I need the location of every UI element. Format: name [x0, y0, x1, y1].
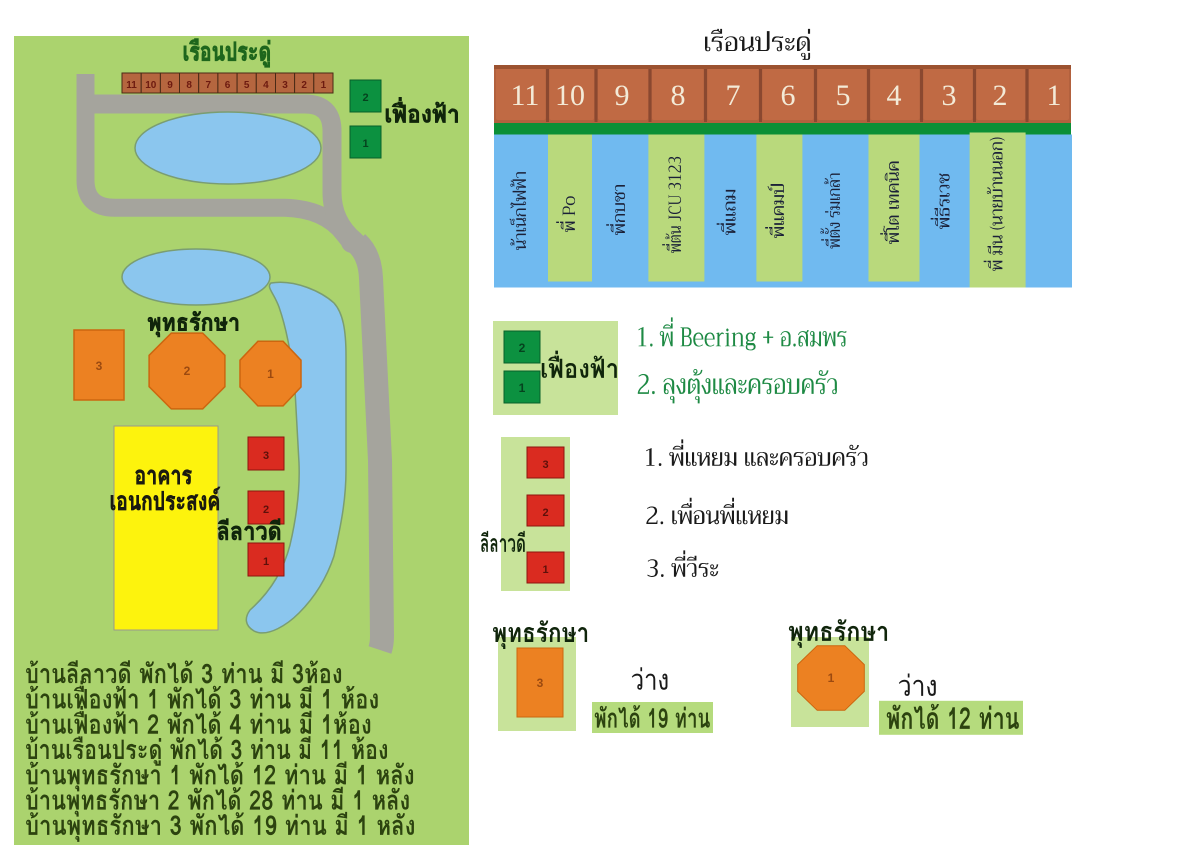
svg-text:2: 2 — [301, 80, 307, 91]
svg-text:10: 10 — [145, 80, 157, 91]
svg-text:2: 2 — [993, 79, 1008, 112]
svg-text:1: 1 — [519, 381, 526, 395]
svg-text:3: 3 — [263, 450, 269, 462]
svg-text:4: 4 — [887, 79, 902, 112]
svg-text:5: 5 — [836, 79, 851, 112]
svg-text:1: 1 — [362, 138, 368, 150]
svg-text:11: 11 — [126, 80, 137, 91]
svg-text:5: 5 — [244, 80, 250, 91]
svg-text:2: 2 — [519, 341, 526, 355]
svg-text:8: 8 — [671, 79, 686, 112]
svg-text:7: 7 — [726, 79, 741, 112]
svg-text:1: 1 — [1047, 79, 1062, 112]
svg-text:1: 1 — [267, 367, 274, 381]
svg-text:10: 10 — [555, 79, 585, 112]
svg-text:3: 3 — [96, 359, 103, 373]
svg-text:1: 1 — [828, 671, 835, 685]
svg-text:8: 8 — [186, 80, 192, 91]
svg-text:6: 6 — [781, 79, 796, 112]
svg-text:1: 1 — [263, 556, 269, 568]
svg-text:2: 2 — [263, 504, 269, 516]
svg-text:11: 11 — [511, 79, 540, 112]
svg-text:3: 3 — [537, 676, 544, 690]
svg-text:9: 9 — [615, 79, 630, 112]
svg-text:2: 2 — [542, 507, 548, 519]
svg-text:2: 2 — [184, 364, 191, 378]
svg-text:3: 3 — [942, 79, 957, 112]
svg-text:6: 6 — [225, 80, 231, 91]
svg-text:4: 4 — [263, 80, 269, 91]
svg-text:2: 2 — [362, 92, 368, 104]
svg-text:9: 9 — [167, 80, 173, 91]
svg-text:1: 1 — [321, 80, 327, 91]
svg-text:3: 3 — [542, 459, 548, 471]
svg-text:1: 1 — [542, 564, 548, 576]
svg-text:7: 7 — [206, 80, 212, 91]
svg-text:3: 3 — [282, 80, 288, 91]
